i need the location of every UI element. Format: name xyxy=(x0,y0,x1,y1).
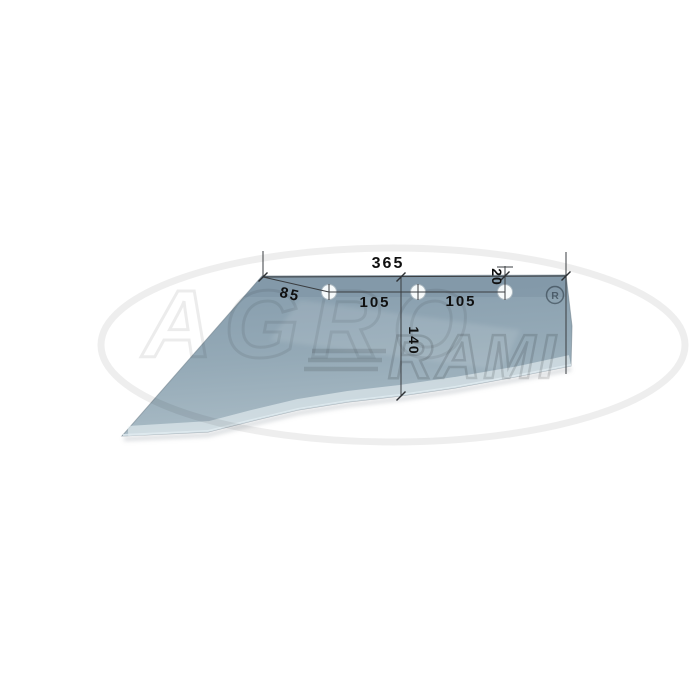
dimension-label-top-offset: 20 xyxy=(489,268,505,286)
registered-trademark-letter: R xyxy=(551,290,559,302)
product-image: AGRO RAMI R xyxy=(0,0,700,700)
dimension-label-hole-spacing-left: 105 xyxy=(359,294,390,311)
dimension-label-mid-height: 140 xyxy=(406,326,422,355)
watermark: AGRO RAMI R xyxy=(101,248,685,442)
dimension-label-overall-width: 365 xyxy=(372,255,405,272)
plough-share-drawing: AGRO RAMI R xyxy=(0,0,700,700)
dimension-label-hole-spacing-right: 105 xyxy=(445,293,476,310)
